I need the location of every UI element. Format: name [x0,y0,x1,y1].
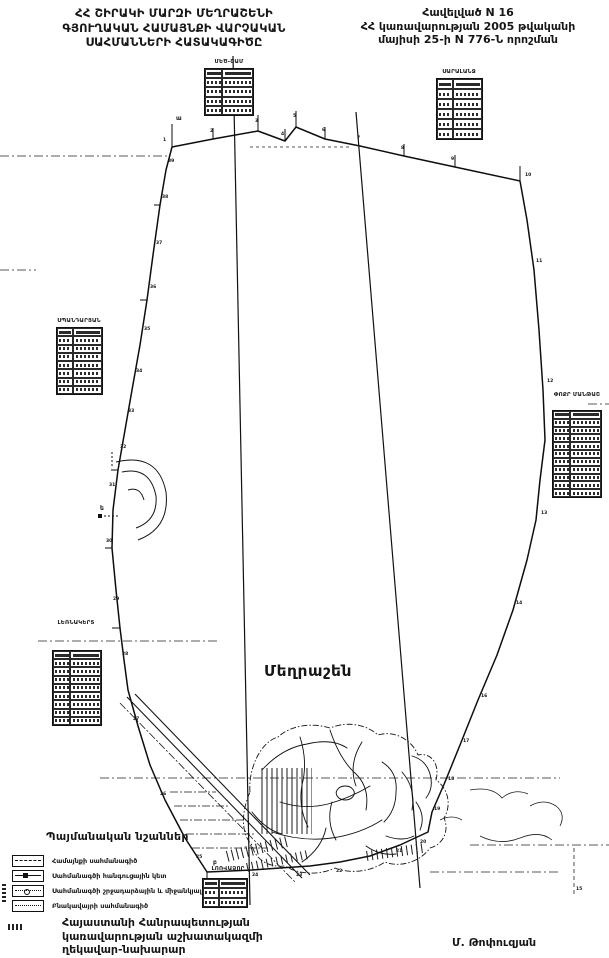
coordinate-table-cell [70,651,101,659]
official-signatory-text: Հայաստանի Հանրապետության կառավարության ա… [62,916,263,957]
legend-item-label: Սահմանագծի շրջադարձային և միջանկյալ կետե… [52,887,227,895]
neighbor-table-label: ՄԵԾ-ՇԱՄ [215,59,244,65]
legend-title: Պայմանական նշաններ [46,830,189,843]
margin-mark [8,924,23,930]
coordinate-table-cell [70,709,101,717]
coordinate-table-cell [57,336,73,344]
coordinate-table-cell [553,450,570,458]
coordinate-table-cell [73,353,102,361]
coordinate-table-cell [53,659,70,667]
terrain-contours [440,789,562,842]
margin-mark [2,884,6,902]
legend-item-label: Բնակավայրի սահմանագիծ [52,902,148,910]
coordinate-table-cell [53,709,70,717]
coordinate-table-cell [570,427,601,435]
coordinate-table-cell [53,700,70,708]
coordinate-table-cell [437,119,453,129]
coordinate-table [552,410,602,498]
legend-item-label: Սահմանագծի հանգուցային կետ [52,872,166,880]
boundary-point-number: 38 [162,194,168,200]
coordinate-table-cell [453,119,482,129]
boundary-point-number: 25 [196,854,202,860]
coordinate-table-cell [222,97,253,106]
boundary-point-numbers: 1234567891011121314151617181920212223242… [100,113,582,892]
settlement-hatching [224,768,423,872]
coordinate-table-cell [203,898,219,907]
official-line: Հայաստանի Հանրապետության [62,916,263,930]
coordinate-table-cell [73,361,102,369]
coordinate-table-cell [222,78,253,87]
boundary-point-number: 30 [106,538,112,544]
coordinate-table-cell [219,898,247,907]
boundary-point-number: 20 [420,839,426,845]
coordinate-table-cell [453,109,482,119]
coordinate-table-cell [437,129,453,139]
boundary-point-number: 11 [536,258,542,264]
settlement-name-label: Մեղրաշեն [243,662,373,680]
coordinate-table-cell [553,434,570,442]
boundary-point-number: 32 [120,444,126,450]
coordinate-table-cell [222,106,253,115]
coordinate-table-cell [70,700,101,708]
boundary-point-number: 24 [252,872,258,878]
boundary-point-number: 8 [401,145,404,151]
coordinate-table-cell [57,353,73,361]
boundary-point-number: 5 [293,113,296,119]
dashed-line-symbol-icon [12,855,44,867]
coordinate-table-cell [570,458,601,466]
coordinate-table-cell [570,411,601,419]
coordinate-table-cell [203,888,219,897]
appendix-line: Հավելված N 16 [330,6,606,20]
boundary-point-number: 3 [255,118,258,124]
coordinate-table-cell [437,99,453,109]
coordinate-table-cell [453,99,482,109]
coordinate-table-cell [453,89,482,99]
boundary-point-number: ե [100,505,104,512]
boundary-point-number: ա [176,115,182,122]
coordinate-table-cell [53,676,70,684]
coordinate-table-cell [437,109,453,119]
page-title: ՀՀ ՇԻՐԱԿԻ ՄԱՐԶԻ ՄԵՂՐԱՇԵՆԻ ԳՅՈՒՂԱԿԱՆ ՀԱՄԱ… [38,6,310,50]
coordinate-table-cell [53,684,70,692]
coordinate-table-cell [553,419,570,427]
coordinate-table-cell [570,466,601,474]
coordinate-table-cell [73,336,102,344]
boundary-point-number: 29 [113,596,119,602]
page-title-line: ՀՀ ՇԻՐԱԿԻ ՄԱՐԶԻ ՄԵՂՐԱՇԵՆԻ [38,6,310,21]
dotted-line-symbol-icon [12,900,44,912]
coordinate-table-cell [57,328,73,336]
neighbor-table-label: ՍՊԱՆԴԱՐՅԱՆ [57,318,101,324]
coordinate-table-cell [553,458,570,466]
neighbor-table-label: ԼՈՌՎԱՁՈՐ [211,866,244,872]
coordinate-table [204,68,254,116]
boundary-point-number: 35 [144,326,150,332]
coordinate-table [56,327,103,395]
coordinate-table-cell [57,386,73,394]
coordinate-table-cell [553,411,570,419]
boundary-point-number: 34 [136,368,142,374]
boundary-point-number: 1 [163,137,166,143]
boundary-point-number: 9 [451,156,454,162]
coordinate-table-cell [70,684,101,692]
boundary-point-number: 16 [481,693,487,699]
coordinate-table-cell [70,659,101,667]
boundary-point-number: 14 [516,600,522,606]
coordinate-table-cell [553,489,570,497]
coordinate-table-cell [53,692,70,700]
boundary-point-number: 2 [210,128,213,134]
coordinate-table-cell [205,106,222,115]
coordinate-table-cell [73,378,102,386]
coordinate-table [52,650,102,726]
legend-item-turning-points: Սահմանագծի շրջադարձային և միջանկյալ կետե… [12,885,227,897]
boundary-point-number: 10 [525,172,531,178]
coordinate-table-cell [70,676,101,684]
boundary-point-number: 12 [547,378,553,384]
coordinate-table-cell [73,328,102,336]
coordinate-table-cell [73,386,102,394]
coordinate-table-cell [205,87,222,96]
boundary-point-number: 27 [133,716,139,722]
boundary-point-number: 13 [541,510,547,516]
coordinate-table-cell [570,481,601,489]
map-svg: 1234567891011121314151617181920212223242… [0,0,609,958]
appendix-line: մայիսի 25-ի N 776-Ն որոշման [330,33,606,47]
coordinate-table-cell [570,419,601,427]
coordinate-table-cell [553,474,570,482]
coordinate-table-cell [553,466,570,474]
junction-point-symbol-icon [12,870,44,882]
legend-item-settlement-boundary: Բնակավայրի սահմանագիծ [12,900,148,912]
boundary-point-number: 18 [448,776,454,782]
turning-point-symbol-icon [12,885,44,897]
appendix-note: Հավելված N 16 ՀՀ կառավարության 2005 թվակ… [330,6,606,47]
boundary-point-number: 39 [168,158,174,164]
legend-item-community-boundary: Համայնքի սահմանագիծ [12,855,137,867]
coordinate-table-cell [219,888,247,897]
coordinate-table-cell [203,879,219,888]
coordinate-table-cell [73,345,102,353]
boundary-point-number: 21 [396,848,402,854]
boundary-point-number: 23 [296,872,302,878]
coordinate-table-cell [453,129,482,139]
boundary-point-number: 37 [156,240,162,246]
boundary-point-number: 15 [576,886,582,892]
community-boundary-line [112,127,545,872]
boundary-point-number: բ [213,859,217,866]
boundary-point-number: 33 [128,408,134,414]
page-title-line: ՍԱՀՄԱՆՆԵՐԻ ՀԱՏԱԿԱԳԻԾԸ [38,35,310,50]
boundary-point-number: 22 [336,868,342,874]
terrain-arcs [98,452,166,540]
cadastral-map-page: 1234567891011121314151617181920212223242… [0,0,609,958]
boundary-point-number: 36 [150,284,156,290]
boundary-point-number: 6 [322,127,325,133]
coordinate-table-cell [57,345,73,353]
boundary-point-number: 7 [357,135,360,141]
boundary-point-number: 26 [160,791,166,797]
signature-name: Մ. Թոփուզյան [452,936,536,949]
coordinate-table-cell [437,89,453,99]
coordinate-table-cell [553,442,570,450]
coordinate-table-cell [570,450,601,458]
coordinate-table-cell [222,69,253,78]
coordinate-table-cell [73,369,102,377]
coordinate-table-cell [553,427,570,435]
coordinate-table-cell [570,474,601,482]
legend-item-junction-point: Սահմանագծի հանգուցային կետ [12,870,166,882]
coordinate-table [436,78,483,140]
coordinate-table-cell [437,79,453,89]
coordinate-table-cell [222,87,253,96]
neighbor-table-label: ՓՈՔՐ ՄԱՆԹԱՇ [554,392,600,398]
boundary-point-number: 31 [109,482,115,488]
boundary-point-number: 4 [281,131,284,137]
coordinate-table-cell [219,879,247,888]
appendix-line: ՀՀ կառավարության 2005 թվականի [330,20,606,34]
neighbor-table-label: ԼԵՌՆԱԿԵՐՏ [58,620,95,626]
boundary-point-number: 28 [122,651,128,657]
coordinate-table-cell [57,378,73,386]
legend-item-label: Համայնքի սահմանագիծ [52,857,137,865]
neighbor-table-label: ՍԱՐԱԼԱՆՋ [442,69,476,75]
coordinate-table-cell [453,79,482,89]
official-line: կառավարության աշխատակազմի [62,930,263,944]
boundary-ticks [105,111,520,880]
coordinate-table-cell [205,69,222,78]
coordinate-table-cell [53,717,70,725]
coordinate-table-cell [53,651,70,659]
coordinate-table-cell [57,361,73,369]
boundary-point-number: 17 [463,738,469,744]
coordinate-table-cell [70,667,101,675]
coordinate-table-cell [53,667,70,675]
coordinate-table-cell [70,717,101,725]
coordinate-table-cell [57,369,73,377]
coordinate-table-cell [570,434,601,442]
coordinate-table [202,878,248,908]
coordinate-table-cell [553,481,570,489]
official-line: ղեկավար-նախարար [62,943,263,957]
coordinate-table-cell [205,78,222,87]
coordinate-table-cell [205,97,222,106]
coordinate-table-cell [570,442,601,450]
coordinate-table-cell [70,692,101,700]
boundary-point-number: 19 [434,806,440,812]
page-title-line: ԳՅՈՒՂԱԿԱՆ ՀԱՄԱՅՆՔԻ ՎԱՐՉԱԿԱՆ [38,21,310,36]
coordinate-table-cell [570,489,601,497]
